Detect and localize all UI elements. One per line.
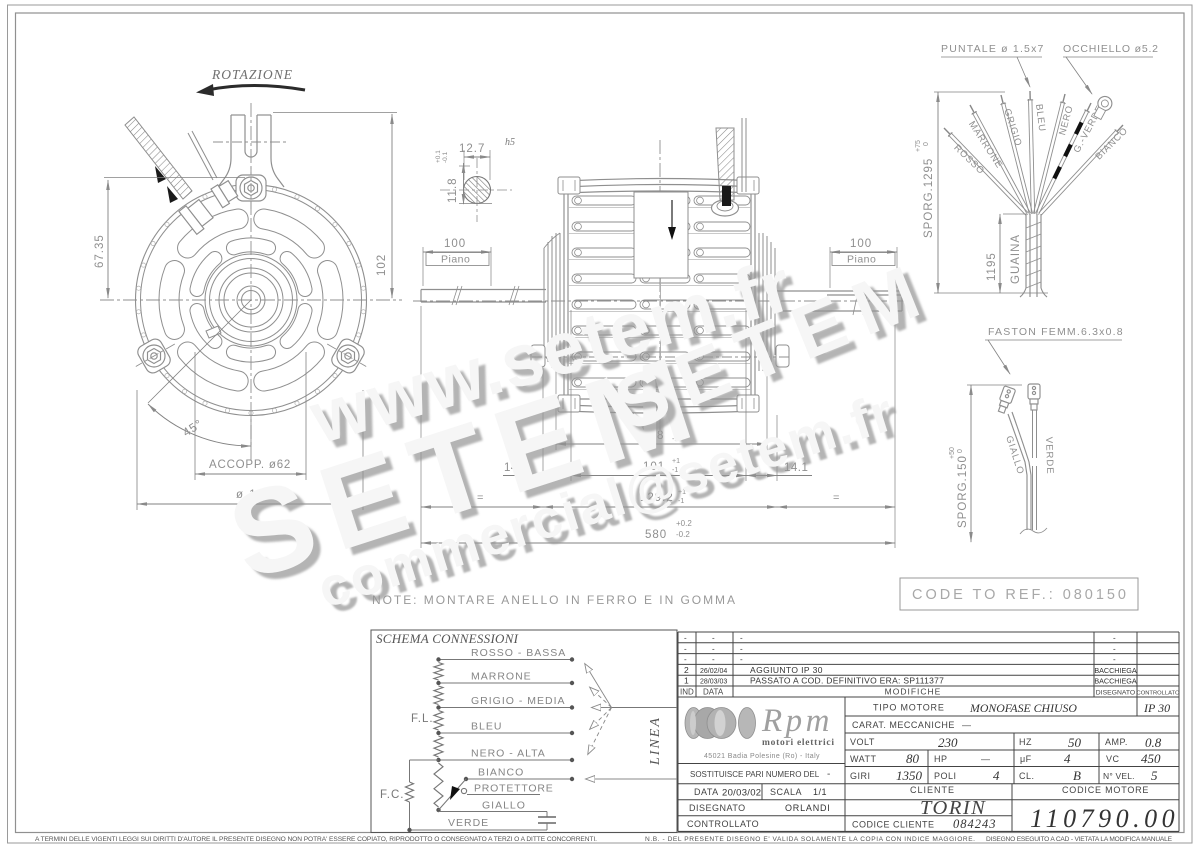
svg-text:VOLT: VOLT xyxy=(850,737,875,747)
svg-text:SOSTITUISCE PARI NUMERO DEL: SOSTITUISCE PARI NUMERO DEL xyxy=(690,770,820,779)
svg-text:+0.1: +0.1 xyxy=(435,150,442,163)
svg-text:+75: +75 xyxy=(915,140,922,152)
svg-text:F.C.: F.C. xyxy=(380,789,404,801)
svg-text:NERO: NERO xyxy=(1057,104,1076,136)
svg-text:TORIN: TORIN xyxy=(920,797,986,819)
svg-text:N.B. - DEL PRESENTE DISEGNO E': N.B. - DEL PRESENTE DISEGNO E' VALIDA SO… xyxy=(645,836,975,843)
svg-text:-: - xyxy=(684,644,687,653)
svg-text:2: 2 xyxy=(684,665,689,675)
svg-text:NOTE: MONTARE ANELLO IN FERRO: NOTE: MONTARE ANELLO IN FERRO E IN GOMMA xyxy=(372,593,735,607)
svg-text:20/03/02: 20/03/02 xyxy=(722,788,761,799)
svg-text:FASTON FEMM.6.3x0.8: FASTON FEMM.6.3x0.8 xyxy=(988,326,1124,338)
svg-text:1195: 1195 xyxy=(986,252,998,281)
svg-text:SPORG.150: SPORG.150 xyxy=(957,455,969,528)
svg-text:OCCHIELLO ø5.2: OCCHIELLO ø5.2 xyxy=(1063,43,1159,55)
svg-text:VERDE: VERDE xyxy=(448,817,489,829)
svg-text:CONTROLLATO: CONTROLLATO xyxy=(687,819,759,829)
svg-text:26/02/04: 26/02/04 xyxy=(700,668,727,675)
svg-text:SCALA: SCALA xyxy=(770,787,802,797)
svg-text:-0.2: -0.2 xyxy=(676,530,690,539)
svg-text:PUNTALE ø 1.5x7: PUNTALE ø 1.5x7 xyxy=(941,43,1045,55)
svg-text:GRIGIO: GRIGIO xyxy=(1001,107,1024,148)
svg-text:ROSSO - BASSA: ROSSO - BASSA xyxy=(471,647,566,659)
svg-text:GIRI: GIRI xyxy=(850,771,871,781)
svg-text:PASSATO A COD. DEFINITIVO ERA:: PASSATO A COD. DEFINITIVO ERA: SP111377 xyxy=(750,676,944,686)
svg-text:CODICE MOTORE: CODICE MOTORE xyxy=(1062,785,1149,795)
svg-text:45°: 45° xyxy=(180,416,205,439)
svg-text:-: - xyxy=(1113,655,1116,664)
svg-text:HP: HP xyxy=(934,754,948,764)
svg-text:230: 230 xyxy=(938,735,958,750)
svg-text:CODICE CLIENTE: CODICE CLIENTE xyxy=(852,820,935,830)
svg-text:CLIENTE: CLIENTE xyxy=(910,785,955,795)
svg-text:-: - xyxy=(740,644,743,653)
svg-text:CONTROLLATO: CONTROLLATO xyxy=(1137,690,1180,696)
svg-text:CL.: CL. xyxy=(1019,771,1035,781)
svg-text:h5: h5 xyxy=(505,137,515,148)
svg-text:100: 100 xyxy=(850,238,872,250)
svg-text:-: - xyxy=(684,634,687,643)
svg-text:-: - xyxy=(1113,644,1116,653)
svg-text:580: 580 xyxy=(645,529,667,541)
svg-text:Piano: Piano xyxy=(441,254,470,266)
svg-text:CODE TO REF.: 080150: CODE TO REF.: 080150 xyxy=(912,587,1126,603)
svg-text:BIANCO: BIANCO xyxy=(1093,125,1130,162)
svg-text:DISEGNATO: DISEGNATO xyxy=(1096,689,1135,696)
svg-text:11.8: 11.8 xyxy=(447,177,459,203)
svg-text:VC: VC xyxy=(1106,754,1120,764)
svg-text:MONOFASE CHIUSO: MONOFASE CHIUSO xyxy=(969,701,1077,715)
svg-text:-0.1: -0.1 xyxy=(442,151,449,163)
svg-text:DATA: DATA xyxy=(694,787,719,797)
svg-text:450: 450 xyxy=(1141,751,1161,766)
svg-text:N° VEL.: N° VEL. xyxy=(1103,771,1135,781)
svg-text:A TERMINI DELLE VIGENTI LEGGI: A TERMINI DELLE VIGENTI LEGGI SUI DIRITT… xyxy=(35,836,597,843)
svg-text:67.35: 67.35 xyxy=(94,234,106,268)
svg-text:084243: 084243 xyxy=(953,817,997,831)
svg-text:WATT: WATT xyxy=(850,754,877,764)
svg-text:DISEGNATO: DISEGNATO xyxy=(689,803,746,813)
svg-text:50: 50 xyxy=(1068,735,1082,750)
svg-text:100: 100 xyxy=(444,238,466,250)
svg-text:ROTAZIONE: ROTAZIONE xyxy=(211,67,293,82)
svg-text:28/03/03: 28/03/03 xyxy=(700,679,727,686)
svg-text:Rpm: Rpm xyxy=(761,703,833,739)
svg-text:SCHEMA CONNESSIONI: SCHEMA CONNESSIONI xyxy=(376,631,519,646)
svg-text:45021 Badia Polesine (Ro) - It: 45021 Badia Polesine (Ro) - Italy xyxy=(704,753,820,760)
svg-text:GIALLO: GIALLO xyxy=(482,800,526,812)
svg-text:102: 102 xyxy=(376,254,388,276)
svg-text:0.8: 0.8 xyxy=(1145,735,1162,750)
svg-text:1350: 1350 xyxy=(896,768,923,783)
svg-text:GUAINA: GUAINA xyxy=(1010,234,1022,284)
svg-text:B: B xyxy=(1073,768,1081,783)
svg-text:+50: +50 xyxy=(949,447,956,459)
svg-text:-: - xyxy=(1113,634,1116,643)
svg-text:0: 0 xyxy=(923,142,930,146)
svg-text:NERO - ALTA: NERO - ALTA xyxy=(471,748,546,760)
svg-text:12.7: 12.7 xyxy=(459,143,485,155)
svg-text:AGGIUNTO IP 30: AGGIUNTO IP 30 xyxy=(750,665,823,675)
svg-text:80: 80 xyxy=(906,751,920,766)
svg-text:5: 5 xyxy=(1151,768,1158,783)
svg-text:BACCHIEGA: BACCHIEGA xyxy=(1094,677,1137,686)
svg-text:VERDE: VERDE xyxy=(1043,437,1055,475)
svg-text:AMP.: AMP. xyxy=(1105,737,1128,747)
svg-text:-: - xyxy=(827,769,830,780)
svg-text:110790.00: 110790.00 xyxy=(1030,804,1179,833)
svg-text:BACCHIEGA: BACCHIEGA xyxy=(1094,666,1137,675)
svg-text:4: 4 xyxy=(1064,751,1071,766)
svg-text:MODIFICHE: MODIFICHE xyxy=(885,686,942,696)
svg-text:-: - xyxy=(740,655,743,664)
svg-text:-: - xyxy=(740,634,743,643)
svg-text:PROTETTORE: PROTETTORE xyxy=(474,783,554,795)
svg-text:—: — xyxy=(981,754,990,764)
svg-text:TIPO MOTORE: TIPO MOTORE xyxy=(873,703,945,713)
svg-text:CARAT. MECCANICHE: CARAT. MECCANICHE xyxy=(852,720,955,730)
svg-text:IND: IND xyxy=(680,687,694,696)
svg-text:4: 4 xyxy=(993,768,1000,783)
svg-text:1: 1 xyxy=(684,676,689,686)
svg-text:0: 0 xyxy=(957,449,964,453)
svg-text:GRIGIO - MEDIA: GRIGIO - MEDIA xyxy=(471,695,566,707)
svg-text:-: - xyxy=(712,644,715,653)
svg-text:DATA: DATA xyxy=(703,687,724,696)
svg-text:1/1: 1/1 xyxy=(813,787,827,797)
svg-text:BLEU: BLEU xyxy=(1033,103,1047,132)
svg-text:-: - xyxy=(684,655,687,664)
svg-text:SPORG.1295: SPORG.1295 xyxy=(923,158,935,238)
svg-text:=: = xyxy=(833,492,839,504)
svg-text:IP 30: IP 30 xyxy=(1143,701,1170,715)
svg-text:motori elettrici: motori elettrici xyxy=(762,738,834,748)
svg-text:-: - xyxy=(712,655,715,664)
svg-text:ORLANDI: ORLANDI xyxy=(785,803,831,813)
svg-text:HZ: HZ xyxy=(1019,737,1032,747)
svg-text:F.L.: F.L. xyxy=(411,713,434,725)
svg-text:DISEGNO ESEGUITO A CAD - VIETA: DISEGNO ESEGUITO A CAD - VIETATA LA MODI… xyxy=(986,836,1173,843)
svg-text:BLEU: BLEU xyxy=(471,721,502,733)
svg-text:MARRONE: MARRONE xyxy=(471,671,532,683)
svg-text:BIANCO: BIANCO xyxy=(478,767,524,779)
svg-text:+0.2: +0.2 xyxy=(676,519,692,528)
svg-text:—: — xyxy=(962,720,971,730)
svg-text:-: - xyxy=(712,634,715,643)
svg-text:LINEA: LINEA xyxy=(648,716,663,766)
svg-text:μF: μF xyxy=(1020,754,1032,764)
svg-text:POLI: POLI xyxy=(934,771,957,781)
